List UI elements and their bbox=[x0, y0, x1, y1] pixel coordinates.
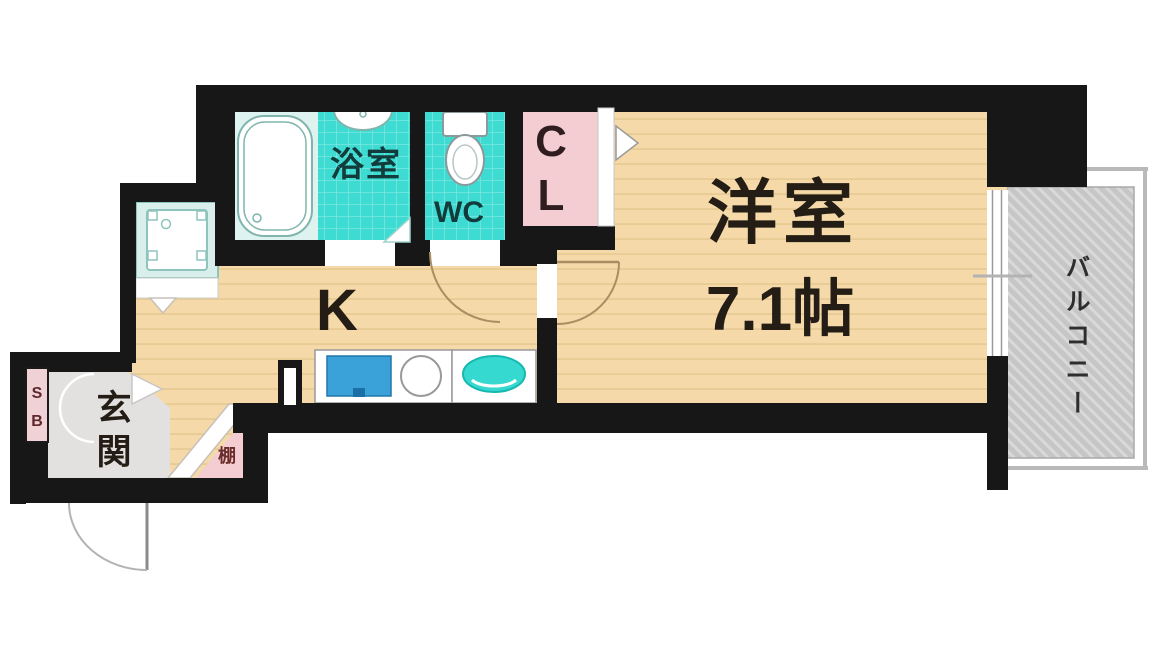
shoe-box bbox=[26, 368, 48, 442]
toilet-tank bbox=[443, 112, 487, 136]
western-room-size: 7.1帖 bbox=[706, 275, 854, 344]
closet-label-l: L bbox=[538, 171, 565, 220]
floorplan-drawing: 浴室 WC C L K 洋室 7.1帖 玄 関 S B 棚 bbox=[0, 0, 1160, 648]
washer-space-threshold bbox=[136, 278, 218, 298]
shelf-label: 棚 bbox=[218, 445, 236, 466]
divider-line-bottom bbox=[1007, 466, 1148, 470]
balcony-label: バルコニー bbox=[1046, 214, 1094, 464]
bathtub-drain bbox=[253, 214, 261, 222]
pan-foot bbox=[197, 211, 206, 220]
wall-end-cap bbox=[284, 368, 296, 405]
closet-label-c: C bbox=[535, 117, 567, 166]
pan-foot bbox=[148, 251, 157, 260]
wall-pillar bbox=[987, 85, 1087, 187]
kitchen-label: K bbox=[316, 278, 358, 343]
pan-foot bbox=[197, 251, 206, 260]
toilet-bowl bbox=[446, 135, 484, 185]
wall bbox=[233, 403, 1008, 433]
shoe-box-label-s: S bbox=[32, 385, 43, 402]
pan-foot bbox=[148, 211, 157, 220]
wall bbox=[26, 442, 48, 480]
entrance-label-1: 玄 bbox=[96, 389, 131, 428]
sink-faucet bbox=[353, 388, 365, 397]
wall bbox=[10, 478, 268, 503]
toilet-label: WC bbox=[434, 196, 484, 229]
western-room-label: 洋室 bbox=[707, 174, 859, 252]
stove-burner bbox=[401, 356, 441, 396]
entrance-label-2: 関 bbox=[96, 433, 131, 472]
toilet-door-opening bbox=[430, 240, 500, 266]
divider-line-right bbox=[1143, 167, 1147, 470]
balcony-window bbox=[987, 190, 1008, 356]
wall bbox=[505, 226, 615, 250]
wall bbox=[243, 403, 268, 503]
pan-drain bbox=[162, 220, 171, 229]
wall bbox=[215, 240, 325, 266]
bathtub bbox=[238, 116, 312, 236]
closet-door bbox=[598, 108, 614, 226]
bathroom-label: 浴室 bbox=[330, 145, 402, 184]
floorplan: 浴室 WC C L K 洋室 7.1帖 玄 関 S B 棚 バルコニー bbox=[0, 0, 1160, 648]
wall bbox=[410, 85, 425, 250]
wall bbox=[505, 85, 523, 248]
shoe-box-label-b: B bbox=[31, 413, 43, 430]
wall bbox=[215, 85, 235, 266]
bathroom-door-opening bbox=[325, 240, 395, 266]
wall bbox=[120, 183, 136, 363]
wall bbox=[395, 240, 430, 266]
room-door-opening bbox=[537, 264, 557, 318]
